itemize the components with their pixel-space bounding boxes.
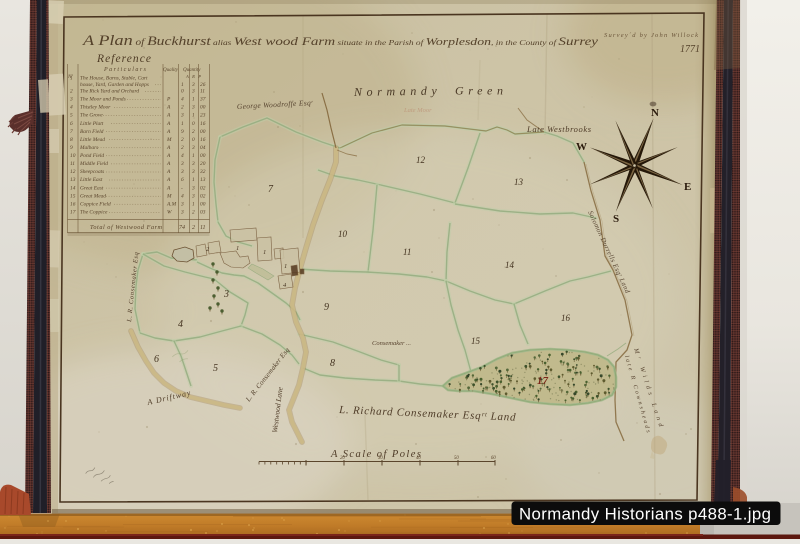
svg-text:1: 1 <box>192 177 195 183</box>
svg-text:Coppice Field: Coppice Field <box>80 201 111 207</box>
svg-text:The Moor and Ponds: The Moor and Ponds <box>80 97 126 103</box>
svg-text:3: 3 <box>191 145 195 151</box>
svg-text:10: 10 <box>338 229 348 239</box>
svg-text:30: 30 <box>378 456 383 461</box>
svg-text:Great Mead: Great Mead <box>80 193 106 199</box>
svg-text:13: 13 <box>514 177 524 187</box>
svg-text:3: 3 <box>191 105 195 111</box>
svg-text:74: 74 <box>179 224 185 231</box>
svg-text:4: 4 <box>181 97 184 103</box>
svg-text:3: 3 <box>180 113 184 119</box>
svg-text:A: A <box>166 153 171 159</box>
svg-text:Survey´d by John Willock: Survey´d by John Willock <box>604 32 698 39</box>
svg-text:37: 37 <box>199 97 206 103</box>
svg-text:00: 00 <box>200 201 206 207</box>
svg-text:5: 5 <box>70 113 73 119</box>
svg-text:23: 23 <box>200 113 206 119</box>
svg-text:Green: Green <box>455 84 508 98</box>
svg-text:A: A <box>166 121 171 127</box>
svg-text:Late Westbrooks: Late Westbrooks <box>526 124 592 134</box>
svg-text:W: W <box>167 210 172 216</box>
svg-text:Quality: Quality <box>163 68 179 73</box>
svg-text:1: 1 <box>181 121 184 127</box>
svg-text:16: 16 <box>561 313 571 323</box>
svg-text:Little Platt: Little Platt <box>79 121 104 127</box>
svg-text:16: 16 <box>200 121 206 127</box>
svg-text:1: 1 <box>70 76 73 82</box>
svg-text:3: 3 <box>191 185 195 191</box>
svg-text:P: P <box>166 97 171 103</box>
svg-text:15: 15 <box>70 193 76 199</box>
svg-text:A: A <box>166 185 171 191</box>
svg-text:-: - <box>181 185 183 191</box>
svg-text:3: 3 <box>180 161 184 167</box>
svg-text:2: 2 <box>192 225 195 231</box>
svg-text:0: 0 <box>192 137 195 143</box>
svg-text:Middle Field: Middle Field <box>79 161 108 167</box>
svg-text:2: 2 <box>181 137 184 143</box>
svg-text:11: 11 <box>200 89 205 95</box>
svg-text:4: 4 <box>178 319 183 330</box>
svg-text:8: 8 <box>70 137 73 143</box>
svg-text:02: 02 <box>200 185 206 191</box>
svg-text:3: 3 <box>69 97 73 103</box>
svg-text:Malbars: Malbars <box>79 145 98 151</box>
svg-text:Pond Field: Pond Field <box>79 153 104 159</box>
svg-text:2: 2 <box>70 89 73 95</box>
svg-text:11: 11 <box>70 161 75 167</box>
svg-text:03: 03 <box>200 210 206 216</box>
svg-text:Consemaker ...: Consemaker ... <box>372 340 411 347</box>
svg-text:20: 20 <box>200 161 206 167</box>
svg-text:3: 3 <box>180 201 184 207</box>
svg-text:50: 50 <box>454 456 459 461</box>
svg-text:40: 40 <box>416 456 421 461</box>
svg-text:0: 0 <box>181 89 184 95</box>
svg-text:1771: 1771 <box>680 44 700 55</box>
svg-text:3: 3 <box>191 169 195 175</box>
svg-text:Little East: Little East <box>79 177 103 183</box>
svg-text:9: 9 <box>70 145 73 151</box>
svg-text:Total of Westwood Farm: Total of Westwood Farm <box>90 224 163 231</box>
svg-text:12: 12 <box>70 169 76 175</box>
svg-text:14: 14 <box>505 260 515 270</box>
svg-text:2: 2 <box>181 145 184 151</box>
svg-text:7: 7 <box>70 129 73 135</box>
svg-text:2: 2 <box>192 210 195 216</box>
svg-text:6: 6 <box>154 354 159 365</box>
svg-text:04: 04 <box>200 145 206 151</box>
svg-text:17: 17 <box>537 375 549 387</box>
svg-text:2: 2 <box>181 105 184 111</box>
svg-text:14: 14 <box>70 185 76 191</box>
svg-text:Sheepcoats: Sheepcoats <box>80 169 104 175</box>
svg-text:Normandy: Normandy <box>353 83 442 99</box>
svg-text:4: 4 <box>181 153 184 159</box>
svg-text:Thistley Moor: Thistley Moor <box>80 105 111 111</box>
svg-text:3: 3 <box>191 89 195 95</box>
svg-text:16: 16 <box>200 137 206 143</box>
svg-text:2: 2 <box>192 129 195 135</box>
svg-text:The House, Barns, Stable, Cart: The House, Barns, Stable, Cart <box>80 76 148 82</box>
svg-text:Particulars: Particulars <box>103 67 147 73</box>
svg-text:6: 6 <box>181 177 184 183</box>
svg-text:12: 12 <box>416 155 426 165</box>
svg-text:60: 60 <box>491 456 496 461</box>
svg-text:W: W <box>576 141 587 153</box>
svg-text:A: A <box>166 129 171 135</box>
svg-text:26: 26 <box>200 82 206 88</box>
svg-text:11: 11 <box>200 225 206 231</box>
svg-text:4: 4 <box>70 105 73 111</box>
svg-text:Little Mead: Little Mead <box>79 137 105 143</box>
svg-text:1: 1 <box>192 97 195 103</box>
svg-text:A: A <box>166 105 171 111</box>
svg-text:1: 1 <box>236 245 239 252</box>
svg-text:3: 3 <box>191 161 195 167</box>
svg-text:32: 32 <box>199 169 206 175</box>
svg-text:house, Yard, Garden and Hopps: house, Yard, Garden and Hopps <box>80 82 149 88</box>
svg-text:0: 0 <box>192 121 195 127</box>
svg-text:Reference: Reference <box>96 53 151 65</box>
svg-text:6: 6 <box>70 121 73 127</box>
svg-text:3: 3 <box>191 193 195 199</box>
svg-text:The Grove: The Grove <box>80 113 103 119</box>
svg-text:1: 1 <box>192 113 195 119</box>
svg-text:Barn Field: Barn Field <box>80 129 104 135</box>
svg-text:11: 11 <box>403 247 411 257</box>
svg-text:13: 13 <box>200 177 206 183</box>
svg-text:3: 3 <box>180 169 184 175</box>
svg-text:The Coppice: The Coppice <box>80 210 108 216</box>
svg-text:9: 9 <box>181 129 184 135</box>
svg-text:8: 8 <box>330 358 335 369</box>
svg-text:00: 00 <box>200 153 206 159</box>
svg-text:N: N <box>651 107 659 119</box>
svg-text:A: A <box>166 113 171 119</box>
svg-text:17: 17 <box>70 210 76 216</box>
svg-text:M: M <box>166 137 172 143</box>
svg-text:The Rick Yard and Orchard: The Rick Yard and Orchard <box>80 89 139 95</box>
svg-text:A.M: A.M <box>166 201 177 207</box>
svg-text:1: 1 <box>263 249 266 256</box>
svg-text:15: 15 <box>471 336 481 346</box>
svg-text:Normandy Historians p488-1.jpg: Normandy Historians p488-1.jpg <box>519 505 771 524</box>
svg-text:3: 3 <box>191 82 195 88</box>
svg-text:1: 1 <box>192 201 195 207</box>
svg-text:M: M <box>166 193 172 199</box>
svg-text:13: 13 <box>70 177 76 183</box>
svg-text:A: A <box>166 161 171 167</box>
svg-text:4: 4 <box>181 193 184 199</box>
svg-text:00: 00 <box>200 105 206 111</box>
svg-text:1: 1 <box>192 153 195 159</box>
svg-text:3: 3 <box>180 210 184 216</box>
svg-text:1: 1 <box>284 263 287 270</box>
svg-text:20: 20 <box>340 456 345 461</box>
svg-text:3: 3 <box>223 289 229 300</box>
svg-text:1: 1 <box>181 82 184 88</box>
svg-text:S: S <box>613 213 619 225</box>
svg-text:Late Moor: Late Moor <box>403 107 432 114</box>
svg-text:9: 9 <box>324 302 329 313</box>
svg-text:E: E <box>684 181 691 193</box>
svg-text:10: 10 <box>70 153 76 159</box>
svg-text:A: A <box>166 145 171 151</box>
svg-text:00: 00 <box>200 129 206 135</box>
svg-text:A: A <box>166 169 171 175</box>
svg-text:5: 5 <box>213 363 218 374</box>
svg-text:16: 16 <box>70 201 76 207</box>
svg-text:A: A <box>166 177 171 183</box>
svg-text:Great East: Great East <box>80 185 104 191</box>
svg-text:02: 02 <box>200 193 206 199</box>
